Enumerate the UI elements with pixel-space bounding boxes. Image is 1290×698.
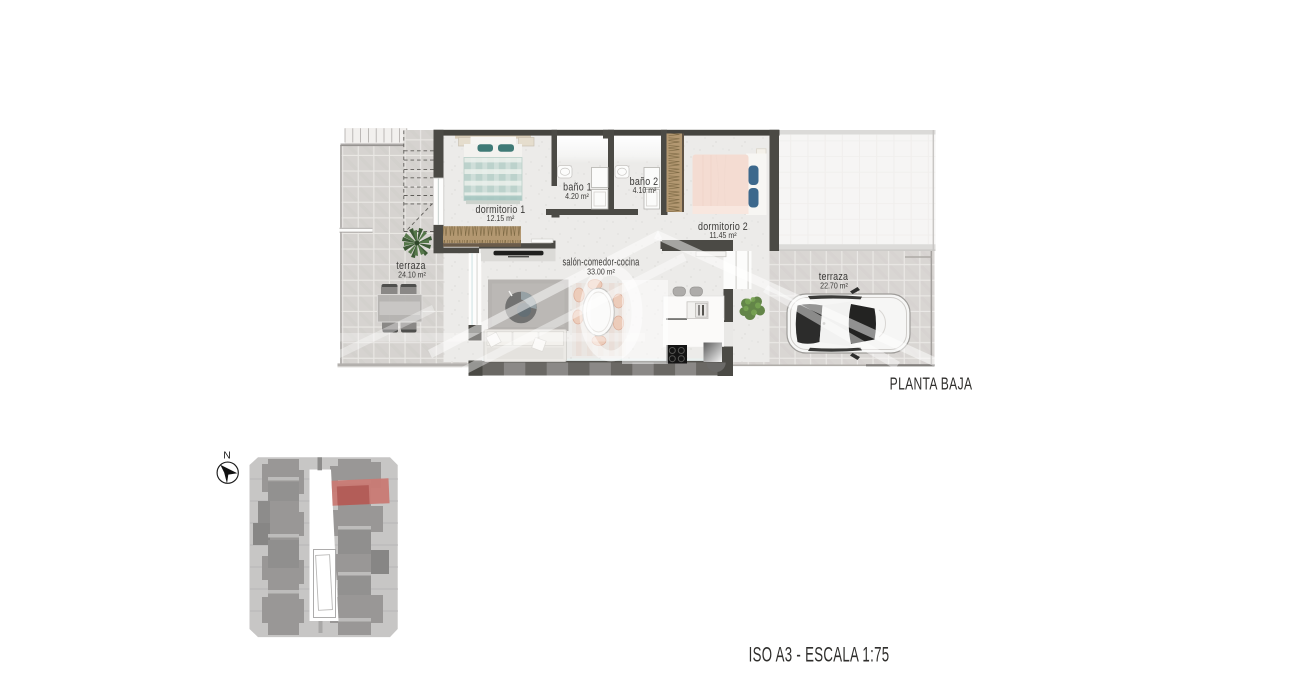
svg-text:N: N: [223, 450, 231, 462]
svg-text:24.10 m²: 24.10 m²: [398, 270, 426, 279]
svg-text:PLANTA BAJA: PLANTA BAJA: [890, 374, 973, 394]
svg-text:22.70 m²: 22.70 m²: [820, 281, 848, 290]
svg-text:12.15 m²: 12.15 m²: [487, 214, 515, 223]
svg-text:ISO A3 - ESCALA 1:75: ISO A3 - ESCALA 1:75: [749, 642, 890, 666]
svg-text:33.00 m²: 33.00 m²: [587, 267, 615, 276]
svg-text:4.10 m²: 4.10 m²: [633, 186, 657, 195]
svg-text:salón-comedor-cocina: salón-comedor-cocina: [562, 256, 640, 268]
svg-text:4.20 m²: 4.20 m²: [565, 192, 589, 201]
svg-text:11.45 m²: 11.45 m²: [709, 231, 737, 240]
